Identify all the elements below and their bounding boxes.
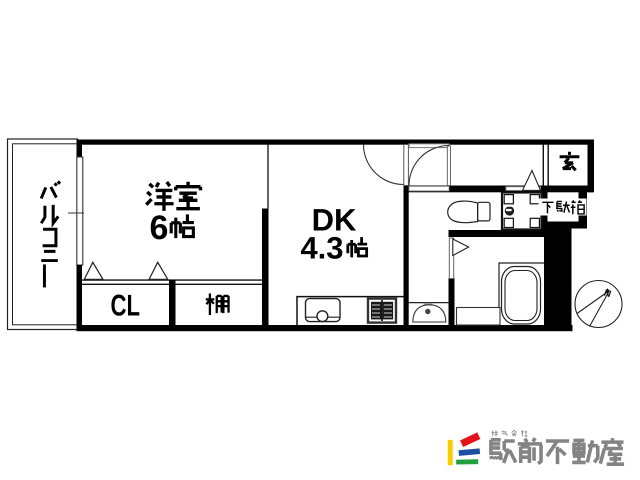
- svg-text:6: 6: [150, 209, 169, 247]
- svg-text:4.3: 4.3: [300, 230, 343, 265]
- svg-text:CL: CL: [111, 289, 141, 322]
